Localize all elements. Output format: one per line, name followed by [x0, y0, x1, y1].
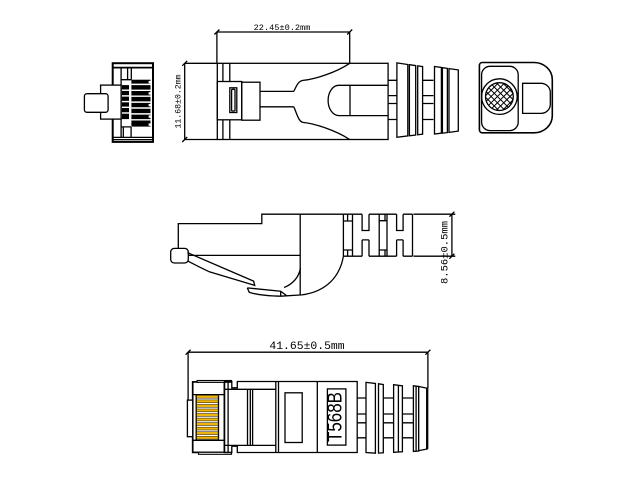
- svg-text:8.56±0.5mm: 8.56±0.5mm: [439, 221, 451, 284]
- svg-text:22.45±0.2mm: 22.45±0.2mm: [254, 23, 311, 33]
- svg-text:11.68±0.2mm: 11.68±0.2mm: [175, 74, 184, 128]
- svg-text:T568B: T568B: [325, 392, 347, 442]
- svg-text:41.65±0.5mm: 41.65±0.5mm: [269, 341, 344, 353]
